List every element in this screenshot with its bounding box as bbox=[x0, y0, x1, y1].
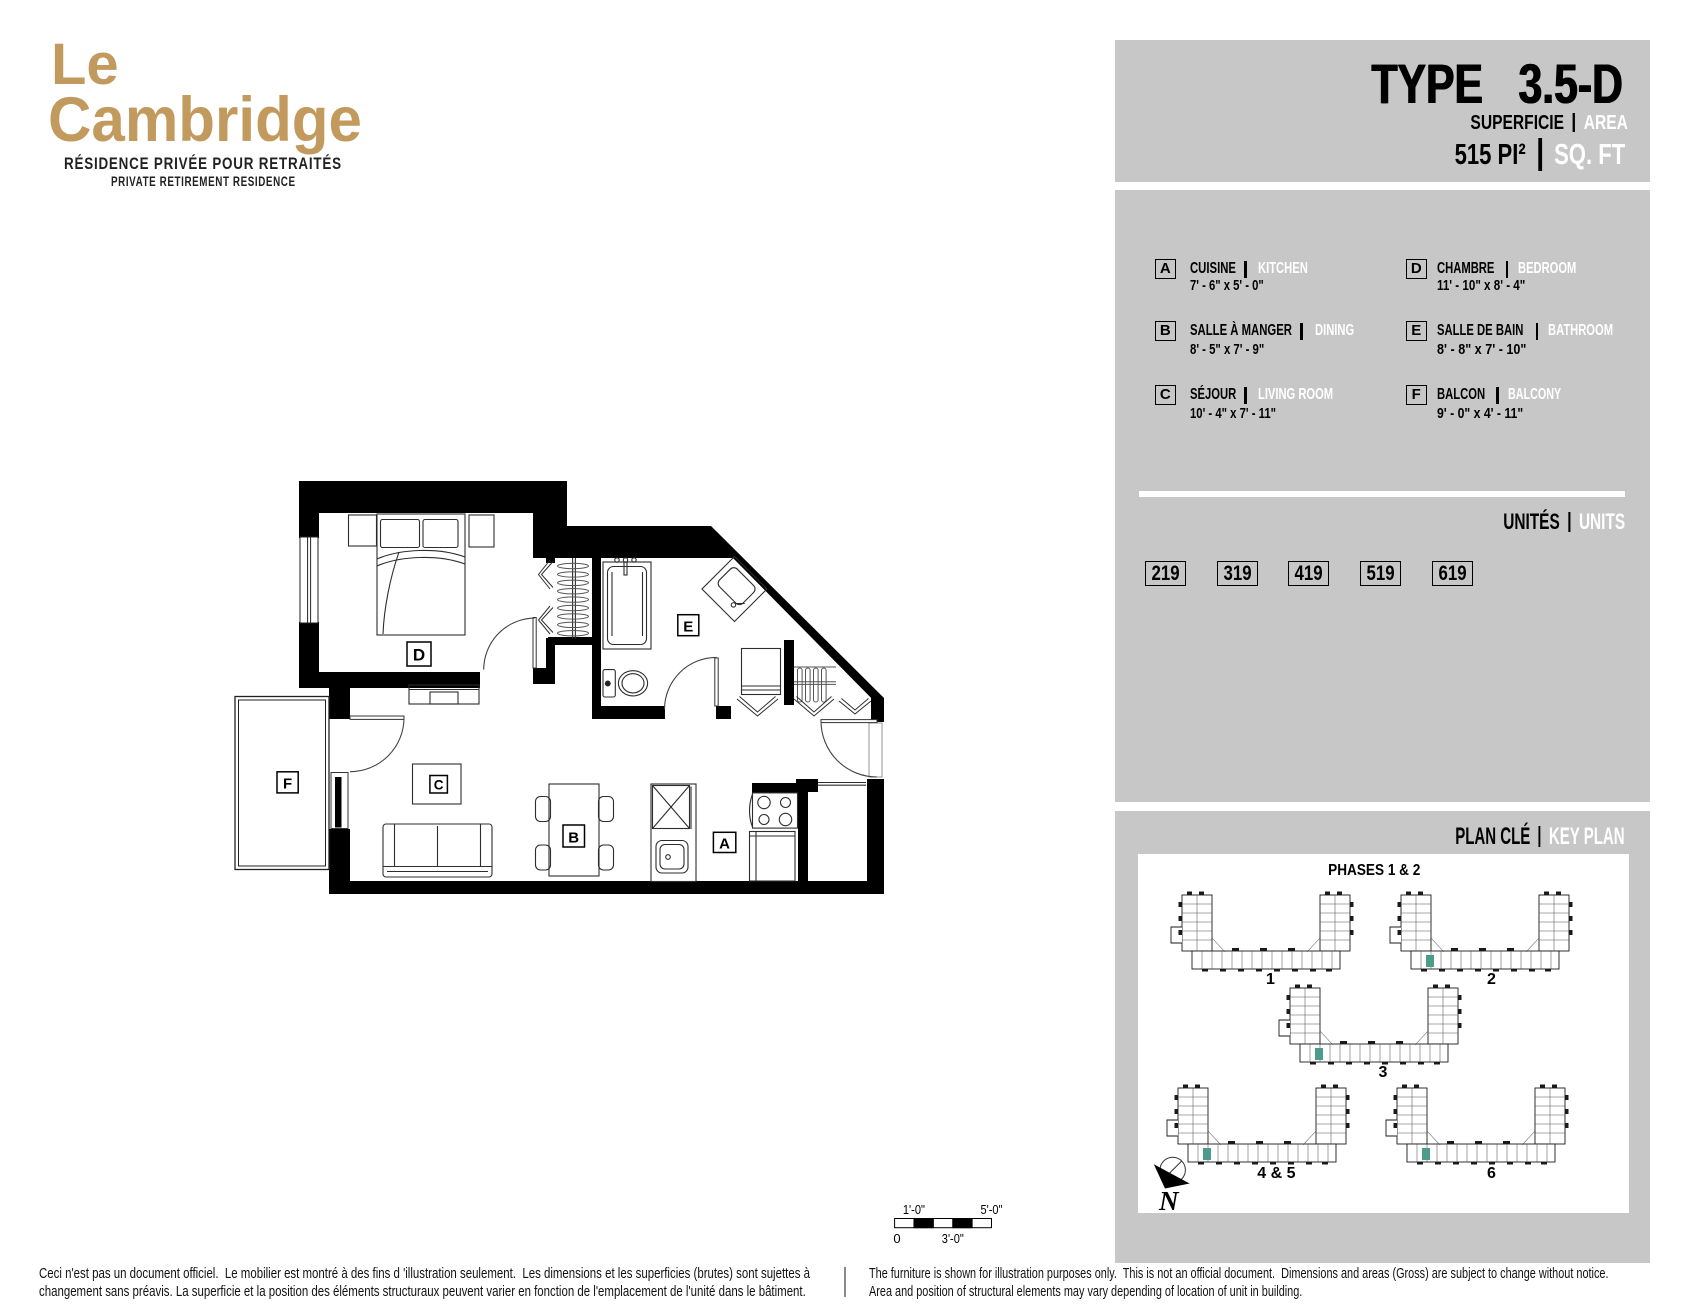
svg-text:4 & 5: 4 & 5 bbox=[1257, 1165, 1295, 1182]
svg-text:B: B bbox=[568, 830, 579, 847]
svg-text:6: 6 bbox=[1487, 1165, 1496, 1182]
svg-text:C: C bbox=[434, 778, 444, 793]
svg-text:N: N bbox=[1158, 1186, 1180, 1213]
svg-text:0: 0 bbox=[893, 1231, 900, 1246]
svg-text:3: 3 bbox=[1378, 1064, 1387, 1081]
svg-text:A: A bbox=[719, 836, 730, 853]
svg-text:5'-0": 5'-0" bbox=[981, 1202, 1003, 1217]
svg-text:3'-0": 3'-0" bbox=[942, 1231, 964, 1246]
svg-text:2: 2 bbox=[1487, 971, 1496, 988]
svg-text:D: D bbox=[413, 646, 425, 665]
svg-text:1'-0": 1'-0" bbox=[903, 1202, 925, 1217]
svg-text:E: E bbox=[683, 619, 693, 636]
svg-text:1: 1 bbox=[1266, 971, 1275, 988]
svg-text:F: F bbox=[283, 776, 292, 793]
